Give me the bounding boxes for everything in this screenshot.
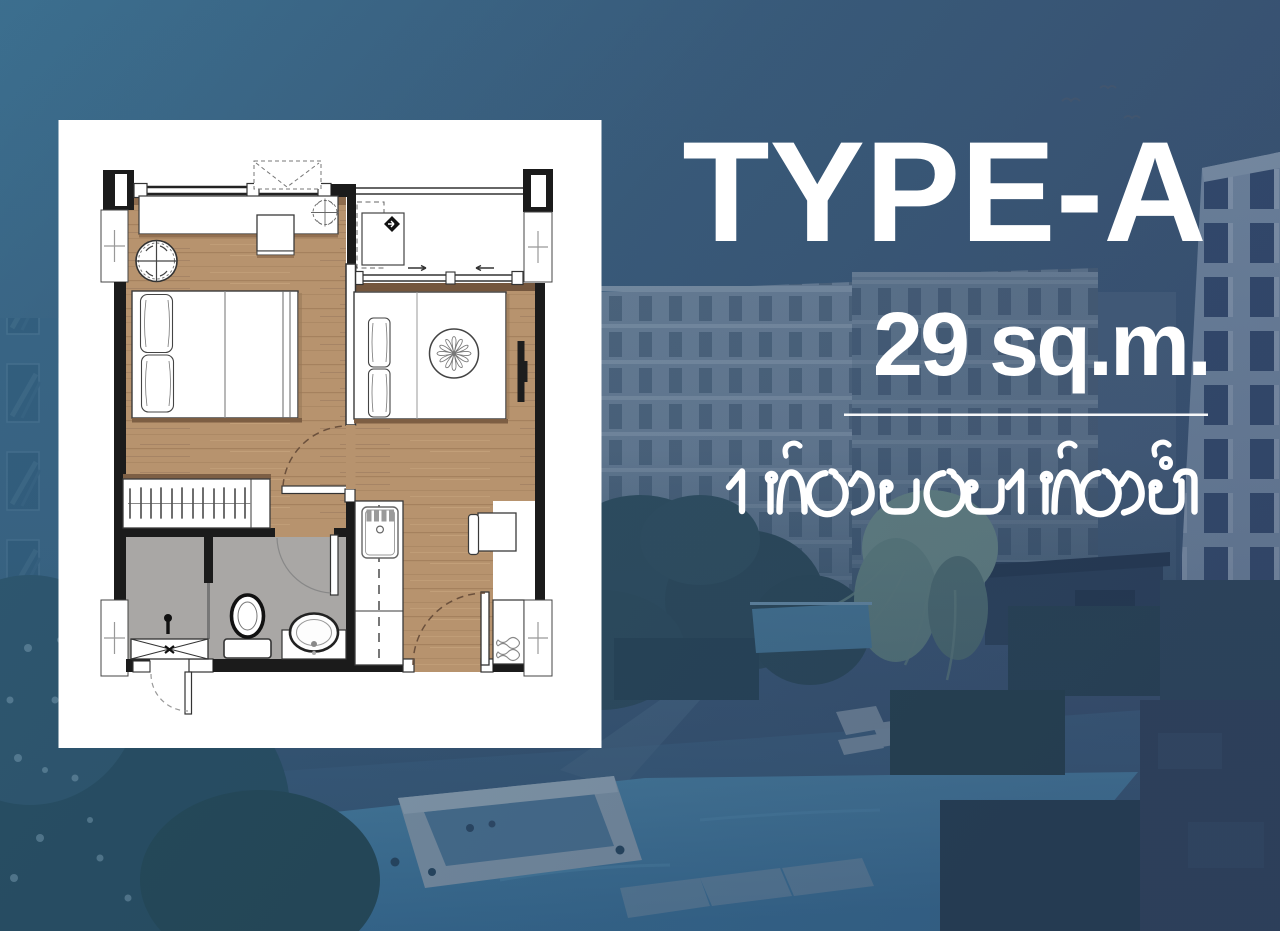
svg-text:29 sq.m.: 29 sq.m. <box>873 295 1209 395</box>
svg-text:TYPE-A: TYPE-A <box>682 113 1206 272</box>
